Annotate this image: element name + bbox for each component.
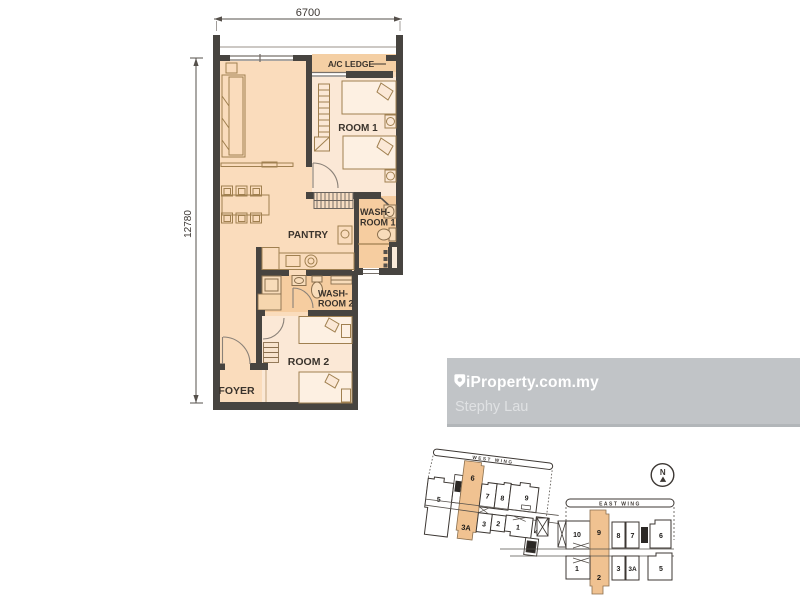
svg-text:6700: 6700	[296, 7, 320, 19]
svg-text:Stephy Lau: Stephy Lau	[455, 399, 528, 415]
svg-text:PANTRY: PANTRY	[288, 230, 328, 241]
svg-text:ROOM 1: ROOM 1	[360, 218, 396, 228]
svg-text:6: 6	[659, 533, 663, 540]
svg-text:3A: 3A	[628, 566, 637, 573]
svg-text:9: 9	[597, 528, 601, 537]
svg-text:N: N	[660, 468, 666, 477]
svg-text:7: 7	[631, 533, 635, 540]
svg-text:1: 1	[575, 566, 579, 573]
svg-text:ROOM 2: ROOM 2	[288, 356, 330, 368]
svg-text:ROOM 2: ROOM 2	[318, 299, 354, 309]
svg-text:WASH-: WASH-	[318, 289, 348, 299]
svg-text:FOYER: FOYER	[218, 385, 255, 397]
svg-text:3A: 3A	[461, 523, 472, 533]
svg-text:WASH-: WASH-	[360, 207, 390, 217]
svg-text:2: 2	[597, 573, 601, 582]
svg-text:iProperty.com.my: iProperty.com.my	[466, 374, 599, 391]
svg-text:8: 8	[617, 533, 621, 540]
svg-text:EAST WING: EAST WING	[599, 502, 641, 508]
svg-text:A/C LEDGE: A/C LEDGE	[328, 59, 375, 69]
svg-text:12780: 12780	[183, 210, 194, 238]
svg-text:5: 5	[659, 566, 663, 573]
svg-text:10: 10	[573, 532, 581, 539]
svg-text:3: 3	[617, 566, 621, 573]
svg-text:ROOM 1: ROOM 1	[338, 123, 378, 134]
